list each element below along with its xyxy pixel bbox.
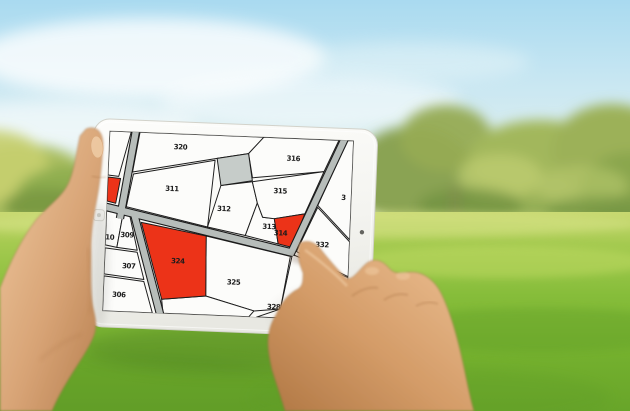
- parcel-label: 309: [120, 230, 134, 240]
- scene-canvas: 320 316 311 315 312 313 314 3 332 310 30…: [0, 0, 630, 411]
- parcel-label: 307: [122, 261, 136, 271]
- parcel-label: 316: [286, 154, 300, 164]
- parcel-label: 314: [274, 228, 288, 238]
- parcel-label: 325: [227, 277, 241, 287]
- parcel-gray[interactable]: [216, 152, 253, 186]
- parcel-label: 306: [112, 290, 126, 300]
- parcel-label: 3: [341, 193, 346, 202]
- knuckle-highlight-1: [365, 267, 379, 275]
- parcel-label: 324: [171, 256, 185, 266]
- photo-scene: 320 316 311 315 312 313 314 3 332 310 30…: [0, 0, 630, 411]
- parcel-label: 312: [217, 204, 231, 214]
- parcel-label: 315: [273, 186, 287, 196]
- parcel-label: 320: [174, 142, 188, 152]
- knuckle-highlight-2: [396, 272, 410, 280]
- parcel-label: 311: [165, 184, 179, 194]
